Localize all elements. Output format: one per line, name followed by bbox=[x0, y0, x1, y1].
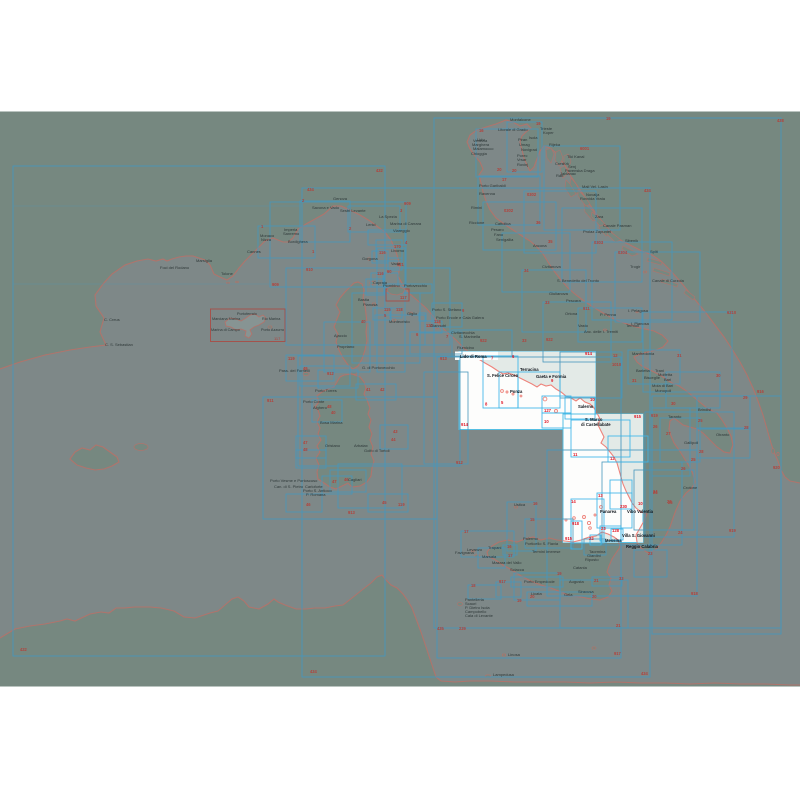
svg-text:Rio Marina: Rio Marina bbox=[262, 317, 281, 321]
svg-text:917: 917 bbox=[614, 651, 622, 656]
svg-text:Lerici: Lerici bbox=[366, 222, 376, 227]
svg-text:911: 911 bbox=[267, 398, 274, 403]
svg-text:Termini Imerese: Termini Imerese bbox=[532, 549, 561, 554]
svg-text:Alghero: Alghero bbox=[313, 405, 328, 410]
svg-text:Pass. dei Fornelli: Pass. dei Fornelli bbox=[279, 368, 310, 373]
svg-text:10: 10 bbox=[544, 419, 549, 424]
svg-text:434: 434 bbox=[307, 187, 315, 192]
svg-text:Marina di Campo: Marina di Campo bbox=[211, 328, 240, 332]
svg-text:Mazara del Vallo: Mazara del Vallo bbox=[492, 560, 522, 565]
svg-text:23: 23 bbox=[648, 551, 653, 556]
svg-text:36: 36 bbox=[536, 220, 541, 225]
svg-text:6001: 6001 bbox=[580, 146, 590, 151]
svg-text:S. Felice Circeo: S. Felice Circeo bbox=[487, 373, 519, 378]
svg-text:Marciana Marina: Marciana Marina bbox=[212, 317, 241, 321]
svg-text:S. Benedetto del Tronto: S. Benedetto del Tronto bbox=[557, 278, 600, 283]
svg-text:18: 18 bbox=[471, 583, 476, 588]
svg-text:918: 918 bbox=[691, 591, 699, 596]
svg-text:30: 30 bbox=[716, 373, 721, 378]
svg-text:Tolone: Tolone bbox=[221, 271, 234, 276]
svg-text:47: 47 bbox=[303, 440, 308, 445]
svg-text:Siracusa: Siracusa bbox=[578, 589, 594, 594]
svg-text:118: 118 bbox=[396, 307, 403, 312]
svg-text:Otranto: Otranto bbox=[716, 432, 730, 437]
svg-text:46: 46 bbox=[306, 502, 311, 507]
svg-text:Marina di Carrara: Marina di Carrara bbox=[390, 221, 422, 226]
svg-text:913: 913 bbox=[348, 510, 356, 515]
svg-text:Brindisi: Brindisi bbox=[698, 407, 711, 412]
svg-text:Portovecchio: Portovecchio bbox=[404, 283, 428, 288]
svg-text:Giglio: Giglio bbox=[407, 311, 418, 316]
svg-text:Split: Split bbox=[650, 249, 659, 254]
svg-text:Bosa Marina: Bosa Marina bbox=[320, 420, 343, 425]
svg-text:24: 24 bbox=[678, 530, 683, 535]
svg-text:31: 31 bbox=[677, 353, 682, 358]
svg-text:40: 40 bbox=[361, 319, 366, 324]
svg-text:0302: 0302 bbox=[527, 192, 537, 197]
svg-text:Ravenna: Ravenna bbox=[479, 191, 496, 196]
svg-text:0302: 0302 bbox=[504, 208, 514, 213]
svg-text:C. S. Sebastian: C. S. Sebastian bbox=[105, 342, 133, 347]
svg-text:Manfredonia: Manfredonia bbox=[632, 351, 655, 356]
svg-text:913: 913 bbox=[440, 356, 448, 361]
svg-text:di Castellabate: di Castellabate bbox=[581, 422, 611, 427]
svg-text:117: 117 bbox=[274, 336, 281, 341]
svg-text:Giardini: Giardini bbox=[587, 553, 601, 558]
svg-text:26: 26 bbox=[681, 466, 686, 471]
svg-text:S. Marinella: S. Marinella bbox=[459, 334, 481, 339]
svg-text:La Spezia: La Spezia bbox=[379, 214, 398, 219]
svg-text:116: 116 bbox=[377, 271, 384, 276]
svg-text:33: 33 bbox=[522, 338, 527, 343]
svg-text:Rimini: Rimini bbox=[471, 205, 482, 210]
svg-text:Nizza: Nizza bbox=[261, 237, 272, 242]
svg-text:I. Pelagosa: I. Pelagosa bbox=[628, 308, 649, 313]
svg-text:115: 115 bbox=[384, 307, 391, 312]
svg-text:28: 28 bbox=[699, 449, 704, 454]
svg-text:119: 119 bbox=[398, 502, 405, 507]
svg-text:Marsiglia: Marsiglia bbox=[196, 258, 213, 263]
svg-text:27: 27 bbox=[666, 431, 671, 436]
svg-text:17: 17 bbox=[464, 529, 469, 534]
svg-text:42: 42 bbox=[380, 387, 385, 392]
svg-text:Augusta: Augusta bbox=[569, 579, 584, 584]
svg-text:Gallipoli: Gallipoli bbox=[684, 440, 698, 445]
svg-text:45: 45 bbox=[382, 500, 387, 505]
svg-text:Litorale di Grado: Litorale di Grado bbox=[498, 127, 528, 132]
svg-text:909: 909 bbox=[404, 201, 412, 206]
svg-text:Termoli: Termoli bbox=[626, 323, 639, 328]
svg-text:Golfo di Tortoli: Golfo di Tortoli bbox=[364, 448, 390, 453]
svg-text:16: 16 bbox=[507, 544, 512, 549]
svg-text:Porticello S. Flavia: Porticello S. Flavia bbox=[525, 541, 559, 546]
svg-text:C. Creus: C. Creus bbox=[104, 317, 120, 322]
svg-text:919: 919 bbox=[651, 413, 659, 418]
svg-text:10: 10 bbox=[638, 501, 643, 506]
svg-text:23: 23 bbox=[601, 526, 606, 531]
svg-text:435: 435 bbox=[437, 626, 445, 631]
svg-text:117: 117 bbox=[400, 295, 407, 300]
svg-text:Jablanac: Jablanac bbox=[560, 171, 576, 176]
svg-text:239: 239 bbox=[459, 626, 467, 631]
svg-text:43: 43 bbox=[393, 429, 398, 434]
svg-text:Bari: Bari bbox=[664, 377, 671, 382]
svg-text:48: 48 bbox=[303, 447, 308, 452]
svg-text:432: 432 bbox=[376, 168, 384, 173]
svg-text:Messina: Messina bbox=[605, 538, 622, 543]
svg-text:Vada: Vada bbox=[391, 261, 401, 266]
svg-text:33: 33 bbox=[619, 576, 624, 581]
svg-text:Marsala: Marsala bbox=[482, 554, 497, 559]
svg-text:Riccione: Riccione bbox=[469, 220, 485, 225]
svg-text:434: 434 bbox=[310, 669, 318, 674]
svg-text:Montecristo: Montecristo bbox=[389, 319, 410, 324]
svg-text:41: 41 bbox=[366, 387, 371, 392]
svg-text:Livorno: Livorno bbox=[391, 248, 405, 253]
svg-text:119: 119 bbox=[288, 356, 295, 361]
svg-text:Canale di Curzola: Canale di Curzola bbox=[652, 278, 685, 283]
svg-text:Pianosa: Pianosa bbox=[363, 302, 378, 307]
svg-text:48: 48 bbox=[327, 404, 332, 409]
svg-text:Crotone: Crotone bbox=[683, 485, 698, 490]
svg-text:Giulianova: Giulianova bbox=[549, 291, 569, 296]
svg-text:128: 128 bbox=[612, 528, 620, 533]
svg-text:Rijeka: Rijeka bbox=[549, 142, 561, 147]
svg-text:28: 28 bbox=[744, 425, 749, 430]
svg-text:Porto Empedocle: Porto Empedocle bbox=[524, 579, 555, 584]
svg-text:914: 914 bbox=[461, 422, 469, 427]
svg-text:Rovinj: Rovinj bbox=[517, 162, 528, 167]
svg-text:Vasto: Vasto bbox=[578, 323, 589, 328]
svg-text:Trogir: Trogir bbox=[630, 264, 641, 269]
svg-text:30: 30 bbox=[671, 401, 676, 406]
svg-text:15: 15 bbox=[530, 517, 535, 522]
svg-text:10: 10 bbox=[590, 397, 595, 402]
svg-text:17: 17 bbox=[502, 177, 507, 182]
svg-text:0304: 0304 bbox=[618, 250, 628, 255]
svg-text:13: 13 bbox=[598, 493, 603, 498]
svg-text:Pescara: Pescara bbox=[566, 298, 581, 303]
svg-text:35: 35 bbox=[548, 239, 553, 244]
svg-text:116: 116 bbox=[379, 250, 386, 255]
svg-text:Porto Garibaldi: Porto Garibaldi bbox=[479, 183, 506, 188]
svg-text:Favignana: Favignana bbox=[455, 550, 474, 555]
svg-text:Bordighera: Bordighera bbox=[288, 239, 308, 244]
svg-text:919: 919 bbox=[729, 528, 737, 533]
svg-text:60: 60 bbox=[387, 269, 392, 274]
svg-text:Gela: Gela bbox=[564, 592, 573, 597]
svg-text:Savona e Vado: Savona e Vado bbox=[312, 205, 340, 210]
svg-text:Porto S. Stefano: Porto S. Stefano bbox=[432, 307, 462, 312]
svg-text:915: 915 bbox=[565, 536, 573, 541]
svg-text:Linosa: Linosa bbox=[508, 652, 521, 657]
svg-text:Senigallia: Senigallia bbox=[496, 237, 514, 242]
svg-text:Isola: Isola bbox=[529, 135, 538, 140]
svg-text:Sestri Levante: Sestri Levante bbox=[340, 208, 366, 213]
svg-text:Vibo Valentia: Vibo Valentia bbox=[627, 509, 654, 514]
svg-text:29: 29 bbox=[743, 395, 748, 400]
svg-text:0303: 0303 bbox=[594, 240, 604, 245]
svg-text:31: 31 bbox=[632, 378, 637, 383]
svg-text:Ponza: Ponza bbox=[510, 389, 523, 394]
svg-text:Catania: Catania bbox=[573, 565, 588, 570]
svg-text:127: 127 bbox=[544, 408, 552, 413]
svg-text:16: 16 bbox=[479, 128, 484, 133]
svg-text:25: 25 bbox=[691, 457, 696, 462]
svg-text:Lido: Lido bbox=[477, 137, 485, 142]
svg-text:Piombino: Piombino bbox=[383, 283, 400, 288]
svg-text:23: 23 bbox=[667, 499, 672, 504]
svg-text:Prolaz Zapuntel: Prolaz Zapuntel bbox=[583, 229, 611, 234]
svg-text:Porto Torres: Porto Torres bbox=[315, 388, 337, 393]
svg-text:Terracina: Terracina bbox=[520, 367, 539, 372]
svg-text:Monopoli: Monopoli bbox=[655, 388, 671, 393]
svg-text:Chioggia: Chioggia bbox=[471, 151, 488, 156]
svg-text:Reggio Calabria: Reggio Calabria bbox=[626, 544, 659, 549]
svg-text:Anc. delle I. Tremiti: Anc. delle I. Tremiti bbox=[584, 329, 618, 334]
svg-text:Foci del Rodano: Foci del Rodano bbox=[160, 265, 190, 270]
svg-text:Cagliari: Cagliari bbox=[348, 477, 362, 482]
svg-text:914: 914 bbox=[585, 351, 593, 356]
svg-text:Taranto: Taranto bbox=[668, 414, 682, 419]
svg-text:Lido di Roma: Lido di Roma bbox=[460, 354, 487, 359]
svg-text:912: 912 bbox=[327, 371, 335, 376]
svg-text:Giannutri: Giannutri bbox=[430, 323, 446, 328]
svg-text:47: 47 bbox=[332, 479, 337, 484]
svg-text:Barletta: Barletta bbox=[636, 368, 651, 373]
svg-text:Canale Pasman: Canale Pasman bbox=[603, 223, 631, 228]
svg-text:Novigrad: Novigrad bbox=[521, 147, 537, 152]
svg-text:21: 21 bbox=[616, 623, 621, 628]
svg-text:915: 915 bbox=[634, 414, 642, 419]
svg-text:Porto Azzurro: Porto Azzurro bbox=[261, 328, 284, 332]
svg-text:918: 918 bbox=[572, 521, 580, 526]
svg-text:24: 24 bbox=[653, 489, 658, 494]
svg-text:G. di Portovecchio: G. di Portovecchio bbox=[362, 365, 395, 370]
svg-text:Villa S. Giovanni: Villa S. Giovanni bbox=[622, 533, 655, 538]
svg-text:Gorgona: Gorgona bbox=[362, 256, 378, 261]
svg-text:Trapani: Trapani bbox=[488, 545, 502, 550]
svg-text:Viareggio: Viareggio bbox=[393, 228, 411, 233]
svg-text:19: 19 bbox=[557, 571, 562, 576]
svg-text:22: 22 bbox=[589, 536, 594, 541]
svg-text:Tiki Kanal: Tiki Kanal bbox=[567, 154, 585, 159]
svg-text:12: 12 bbox=[610, 456, 615, 461]
svg-text:Monfalcone: Monfalcone bbox=[510, 117, 531, 122]
svg-text:Portoferraio: Portoferraio bbox=[237, 312, 257, 316]
svg-text:1010: 1010 bbox=[612, 362, 622, 367]
svg-text:11: 11 bbox=[573, 452, 578, 457]
svg-text:19: 19 bbox=[606, 116, 611, 121]
svg-text:33: 33 bbox=[545, 300, 550, 305]
svg-text:Porto Conte: Porto Conte bbox=[303, 399, 325, 404]
svg-text:Mali Vel. Lasin: Mali Vel. Lasin bbox=[582, 184, 608, 189]
svg-text:16: 16 bbox=[533, 501, 538, 506]
svg-text:917: 917 bbox=[499, 579, 507, 584]
svg-text:920: 920 bbox=[773, 465, 781, 470]
svg-text:26: 26 bbox=[653, 424, 658, 429]
svg-text:Salerno: Salerno bbox=[578, 404, 594, 409]
svg-text:Genova: Genova bbox=[333, 196, 348, 201]
svg-text:Panarea: Panarea bbox=[600, 509, 617, 514]
svg-text:6310: 6310 bbox=[727, 310, 737, 315]
svg-text:Sanremo: Sanremo bbox=[283, 231, 300, 236]
svg-text:12: 12 bbox=[613, 353, 618, 358]
svg-text:909: 909 bbox=[272, 282, 280, 287]
svg-text:Sciacca: Sciacca bbox=[510, 567, 525, 572]
svg-text:Cala di Levante: Cala di Levante bbox=[465, 613, 494, 618]
svg-text:P. Romana: P. Romana bbox=[306, 492, 326, 497]
svg-text:Sibenik: Sibenik bbox=[625, 238, 638, 243]
svg-text:Lampedusa: Lampedusa bbox=[493, 672, 515, 677]
svg-text:Cattolica: Cattolica bbox=[495, 221, 511, 226]
svg-text:Can. di S. Pietro: Can. di S. Pietro bbox=[274, 484, 304, 489]
svg-text:Porto Ercole e Cala Galera: Porto Ercole e Cala Galera bbox=[436, 315, 485, 320]
svg-text:34: 34 bbox=[524, 268, 529, 273]
svg-text:Ustica: Ustica bbox=[514, 502, 526, 507]
svg-text:910: 910 bbox=[306, 267, 314, 272]
svg-text:21: 21 bbox=[594, 578, 599, 583]
svg-text:Koper: Koper bbox=[543, 130, 554, 135]
svg-text:20: 20 bbox=[592, 594, 597, 599]
svg-text:Ancona: Ancona bbox=[533, 243, 547, 248]
svg-text:Cannes: Cannes bbox=[247, 249, 261, 254]
svg-text:40: 40 bbox=[331, 410, 336, 415]
svg-text:922: 922 bbox=[480, 338, 488, 343]
svg-text:434: 434 bbox=[644, 188, 652, 193]
svg-text:Gaeta e Formia: Gaeta e Formia bbox=[536, 374, 567, 379]
svg-text:438: 438 bbox=[777, 118, 785, 123]
svg-text:19: 19 bbox=[517, 598, 522, 603]
svg-text:Zara: Zara bbox=[595, 214, 604, 219]
svg-text:17: 17 bbox=[508, 553, 513, 558]
svg-text:20: 20 bbox=[497, 167, 502, 172]
svg-text:912: 912 bbox=[456, 460, 464, 465]
svg-text:Porto Vesme e Portoscuso: Porto Vesme e Portoscuso bbox=[270, 478, 318, 483]
svg-text:916: 916 bbox=[757, 389, 765, 394]
svg-text:432: 432 bbox=[20, 647, 28, 652]
svg-text:922: 922 bbox=[546, 337, 554, 342]
svg-text:25: 25 bbox=[698, 418, 703, 423]
svg-text:Ortona: Ortona bbox=[565, 311, 578, 316]
svg-text:20: 20 bbox=[512, 168, 517, 173]
svg-text:Propriano: Propriano bbox=[337, 344, 355, 349]
svg-text:44: 44 bbox=[391, 437, 396, 442]
svg-text:Rovvida Vrata: Rovvida Vrata bbox=[580, 196, 606, 201]
svg-text:14: 14 bbox=[571, 499, 576, 504]
svg-text:Ajaccio: Ajaccio bbox=[334, 333, 348, 338]
svg-text:Civitanova: Civitanova bbox=[542, 264, 561, 269]
svg-text:911: 911 bbox=[583, 306, 590, 311]
svg-text:434: 434 bbox=[641, 671, 649, 676]
svg-text:Fiumicino: Fiumicino bbox=[457, 345, 475, 350]
svg-text:Licata: Licata bbox=[531, 591, 542, 596]
svg-text:P. Penna: P. Penna bbox=[600, 312, 617, 317]
svg-text:Oristano: Oristano bbox=[325, 443, 341, 448]
